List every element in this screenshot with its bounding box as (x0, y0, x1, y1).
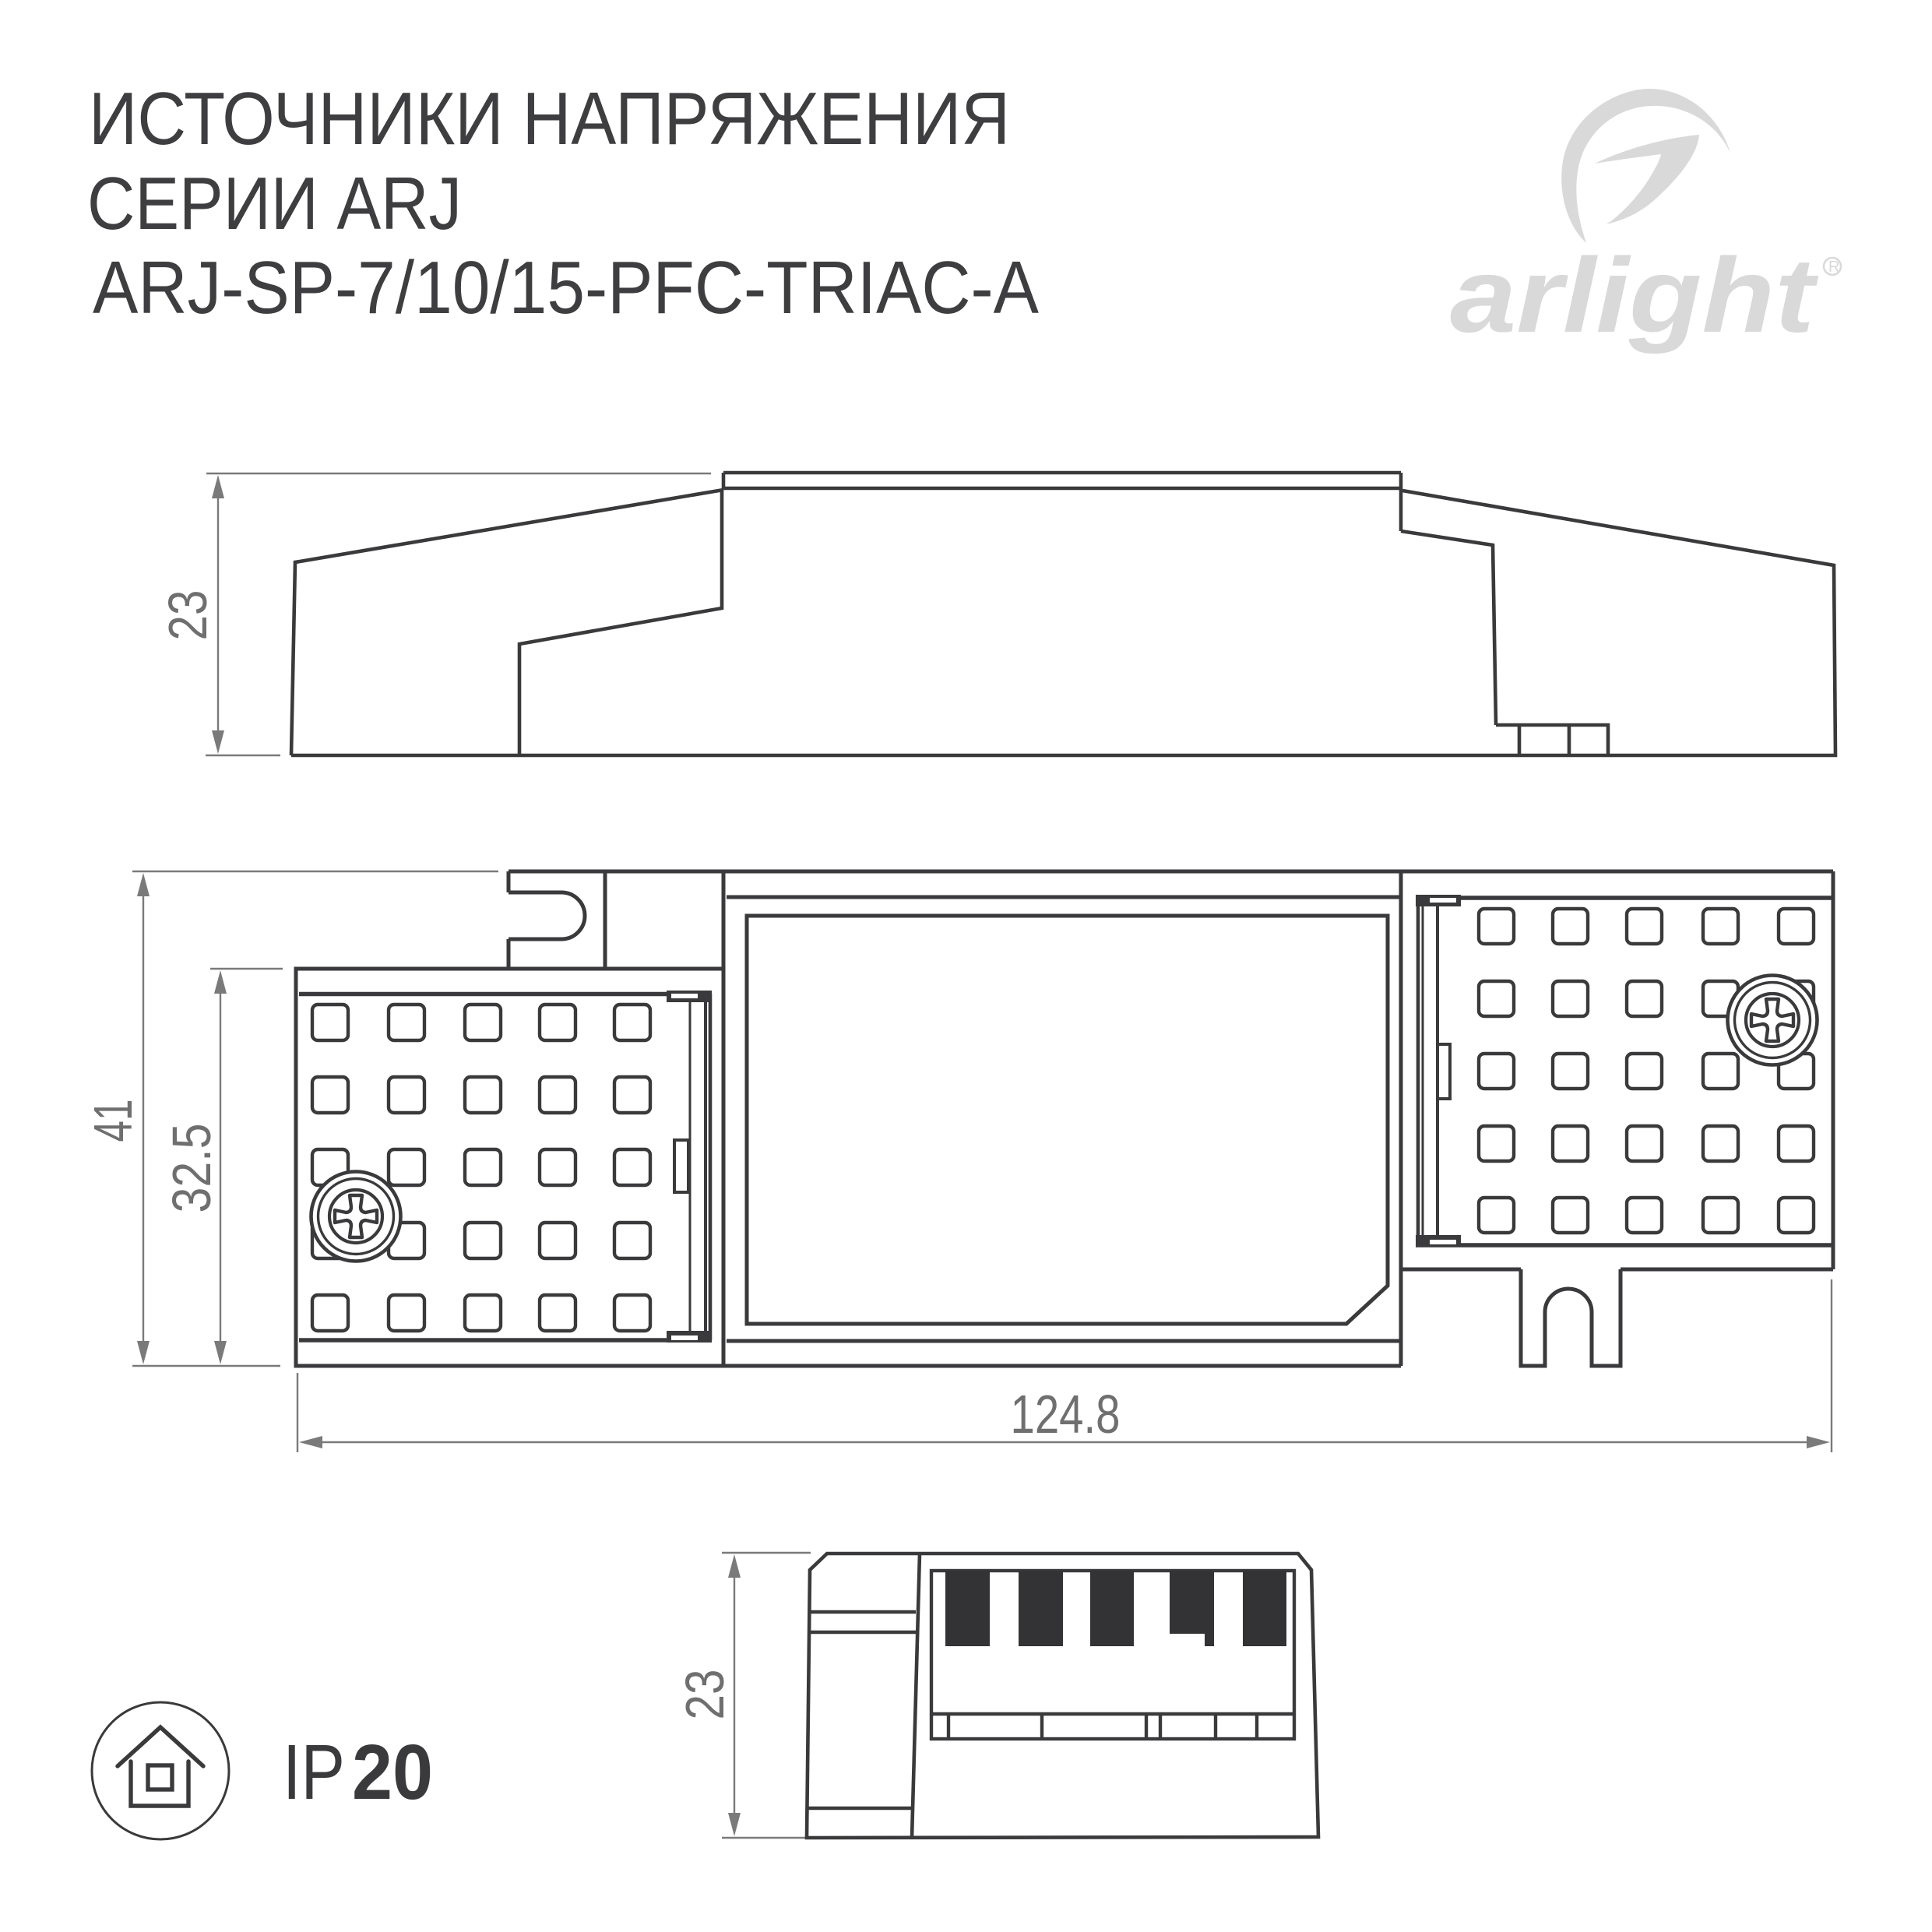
svg-text:ARJ-SP-7/10/15-PFC-TRIAC-A: ARJ-SP-7/10/15-PFC-TRIAC-A (93, 246, 1039, 329)
svg-text:41: 41 (83, 1100, 143, 1142)
svg-text:20: 20 (352, 1729, 433, 1816)
svg-text:32.5: 32.5 (161, 1124, 222, 1213)
svg-text:R: R (1828, 259, 1839, 276)
svg-text:СЕРИИ ARJ: СЕРИИ ARJ (87, 162, 462, 245)
svg-text:IP: IP (283, 1729, 345, 1816)
svg-text:23: 23 (674, 1670, 735, 1720)
svg-text:ИСТОЧНИКИ НАПРЯЖЕНИЯ: ИСТОЧНИКИ НАПРЯЖЕНИЯ (89, 77, 1010, 160)
svg-text:arlight: arlight (1450, 236, 1818, 354)
svg-text:124.8: 124.8 (1011, 1384, 1121, 1445)
svg-text:23: 23 (157, 590, 218, 641)
